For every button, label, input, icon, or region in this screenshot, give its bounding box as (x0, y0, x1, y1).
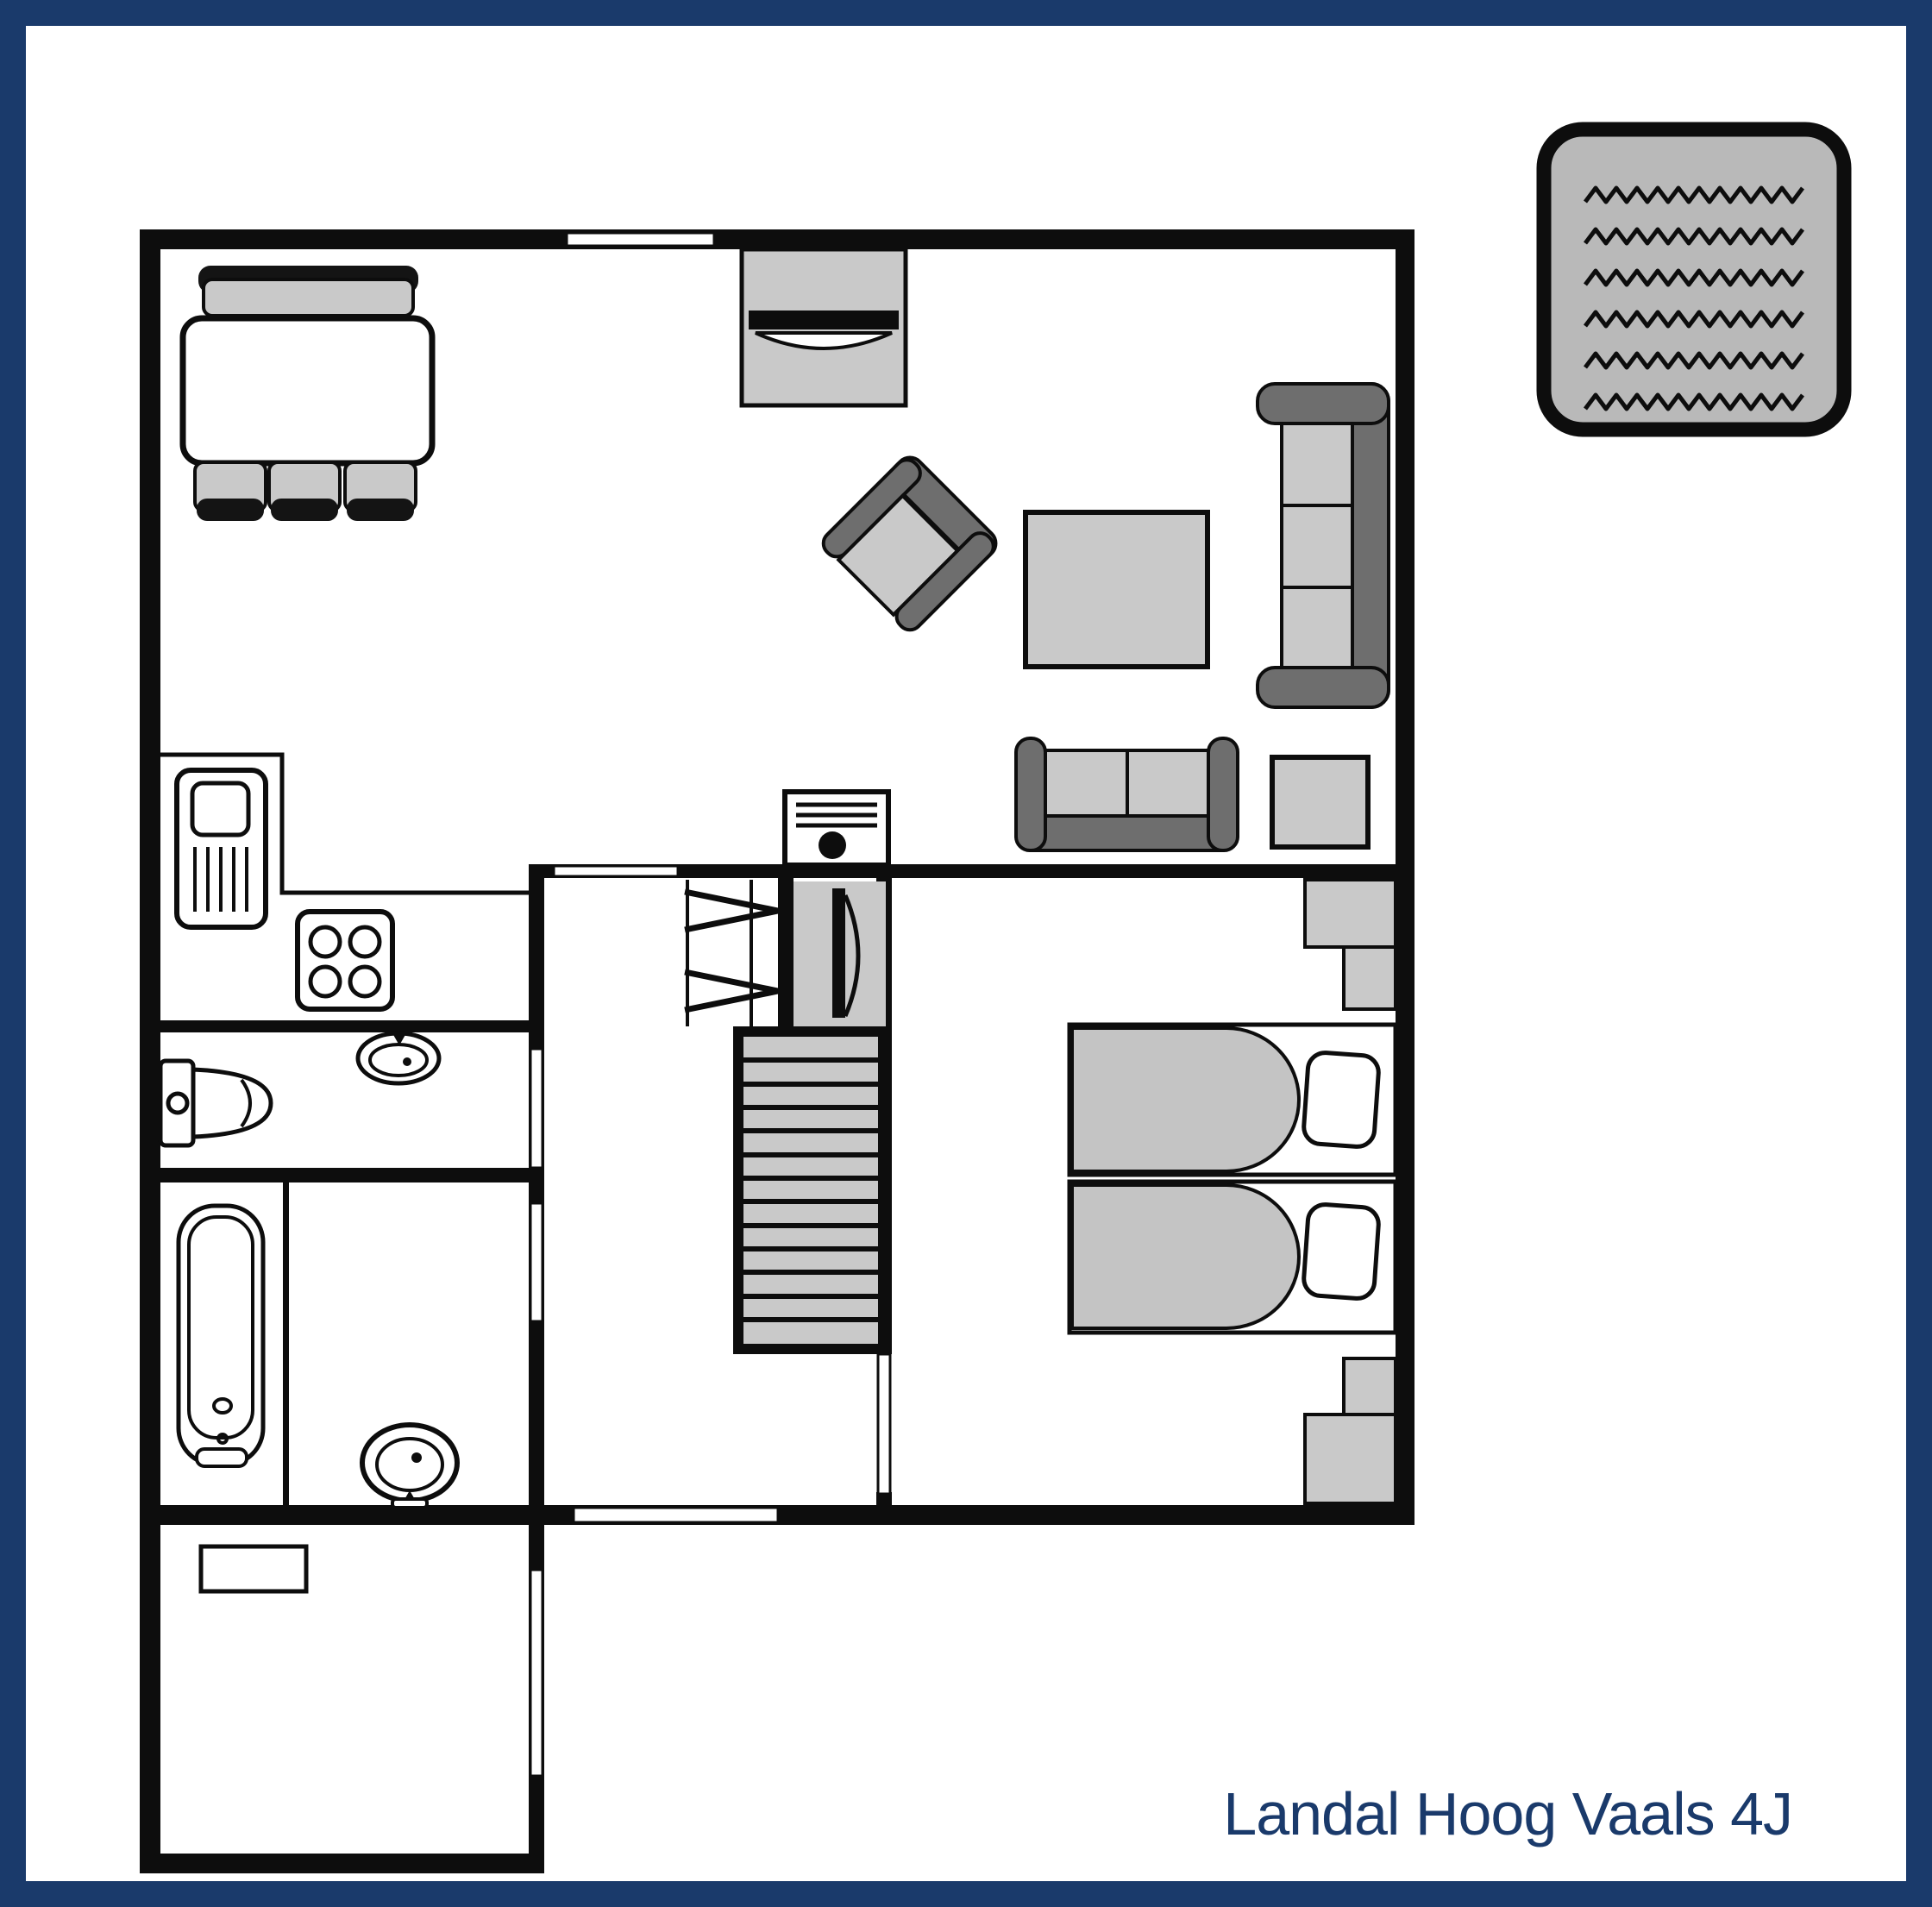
storage-room (201, 1546, 306, 1591)
dining-table-icon (183, 318, 432, 463)
pillow-icon (1302, 1051, 1379, 1147)
hot-tub-icon (1544, 129, 1844, 430)
staircase-icon (733, 1026, 890, 1354)
plan-title: Landal Hoog Vaals 4J (1223, 1779, 1792, 1848)
sofa-2seat-icon (1016, 738, 1238, 850)
hall-stairs (685, 878, 890, 1354)
bathtub-icon (179, 1206, 263, 1466)
stove-hob-icon (298, 912, 392, 1009)
stair-direction-chevrons-icon (685, 892, 778, 930)
single-bed-icon (1069, 1182, 1396, 1333)
washbasin-icon (362, 1425, 457, 1508)
stair-direction-chevrons-icon (685, 972, 778, 1010)
side-table-icon (1272, 757, 1368, 847)
pillow-icon (1302, 1203, 1379, 1299)
sofa-3seat-icon (1258, 384, 1389, 707)
single-bed-icon (1069, 1025, 1396, 1175)
door-opening-icon (574, 1508, 778, 1522)
door-opening-icon (878, 1354, 890, 1494)
door-opening-icon (530, 1049, 543, 1168)
fireplace-stove-icon (785, 792, 888, 865)
bedroom (1069, 880, 1396, 1503)
wc-room (160, 1033, 439, 1145)
fridge-icon (177, 770, 266, 927)
window-icon (567, 233, 714, 246)
floor-plan-svg (26, 26, 1932, 1907)
wardrobe-cabinet-icon (1344, 1358, 1396, 1415)
door-opening-icon (530, 1203, 543, 1321)
dining-set (183, 266, 432, 521)
wardrobe-cabinet-icon (1305, 1415, 1396, 1503)
wardrobe-cabinet-icon (1344, 947, 1396, 1009)
wardrobe-cabinet-icon (1305, 880, 1396, 947)
door-opening-icon (554, 866, 678, 876)
tv-sideboard-icon (742, 249, 906, 405)
kitchen (160, 755, 529, 1009)
toilet-icon (160, 1061, 271, 1145)
dining-bench-seat (204, 279, 413, 316)
dining-chair-icon (345, 462, 416, 521)
coffee-table-icon (1026, 512, 1207, 667)
dining-chair-icon (269, 462, 340, 521)
armchair-icon (819, 452, 1001, 635)
bathroom (179, 1206, 457, 1508)
washbasin-icon (358, 1033, 439, 1083)
doormat-icon (201, 1546, 306, 1591)
floor-plan-page: Landal Hoog Vaals 4J (0, 0, 1932, 1907)
door-icon (793, 881, 886, 1026)
door-opening-icon (530, 1570, 543, 1776)
dining-chair-icon (195, 462, 266, 521)
